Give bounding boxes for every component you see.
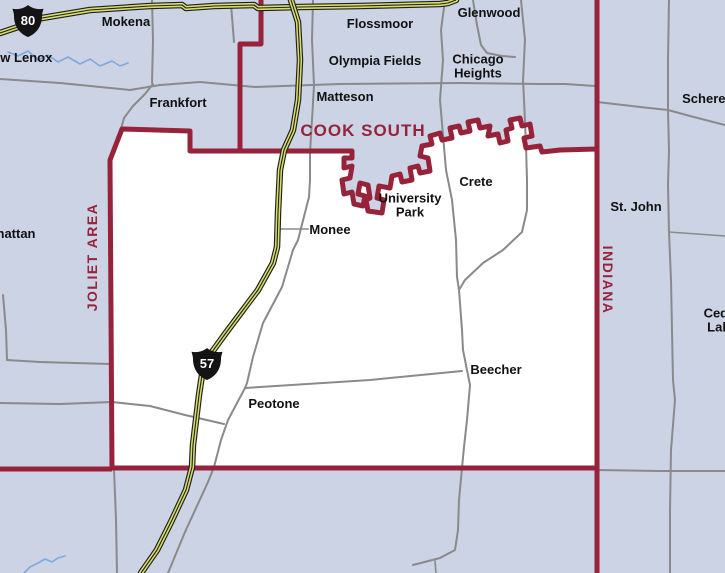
boundary-frankfort-matteson	[240, 0, 261, 151]
town-label-manhattan: Manhattan	[0, 227, 36, 241]
town-label-mokena: Mokena	[102, 15, 150, 29]
map-geometry: 80 57	[0, 0, 725, 573]
town-label-glenwood: Glenwood	[458, 6, 521, 20]
i80-shield-number: 80	[21, 13, 35, 28]
town-label-beecher: Beecher	[470, 363, 521, 377]
town-label-crete: Crete	[459, 175, 492, 189]
road-indiana-spur	[669, 232, 725, 236]
road-indiana-vertical	[668, 0, 675, 573]
town-label-peotone: Peotone	[248, 397, 299, 411]
town-label-olympia-fields: Olympia Fields	[329, 54, 421, 68]
cook-south-district-map: 80 57 COOK SOUTH JOLIET AREA INDIANA Mok…	[0, 0, 725, 573]
town-label-frankfort: Frankfort	[149, 96, 206, 110]
district-label-cook-south: COOK SOUTH	[300, 121, 425, 141]
road-bottom-stub	[435, 561, 436, 573]
district-label-indiana: INDIANA	[600, 246, 616, 315]
town-label-chicago-heights: Chicago Heights	[446, 52, 510, 79]
town-label-flossmoor: Flossmoor	[347, 17, 413, 31]
district-label-joliet-area: JOLIET AREA	[84, 203, 100, 312]
road-indiana-bottom	[597, 470, 725, 471]
town-label-schererville: Schererville	[682, 92, 725, 106]
road-mokena-vertical	[152, 0, 153, 83]
town-label-st-john: St. John	[610, 200, 661, 214]
town-label-new-lenox: New Lenox	[0, 51, 52, 65]
road-frankfort-curve	[121, 84, 153, 129]
town-label-monee: Monee	[309, 223, 350, 237]
road-below-left-border	[114, 469, 117, 573]
i80-shield-icon: 80	[13, 5, 44, 37]
i57-shield-number: 57	[200, 356, 214, 371]
town-label-matteson: Matteson	[316, 90, 373, 104]
town-label-cedar-lake: Cedar Lake	[698, 306, 725, 333]
river-bottom-left	[24, 556, 65, 573]
town-label-university-park: University Park	[373, 191, 447, 218]
road-frankfort-stub	[231, 4, 234, 42]
